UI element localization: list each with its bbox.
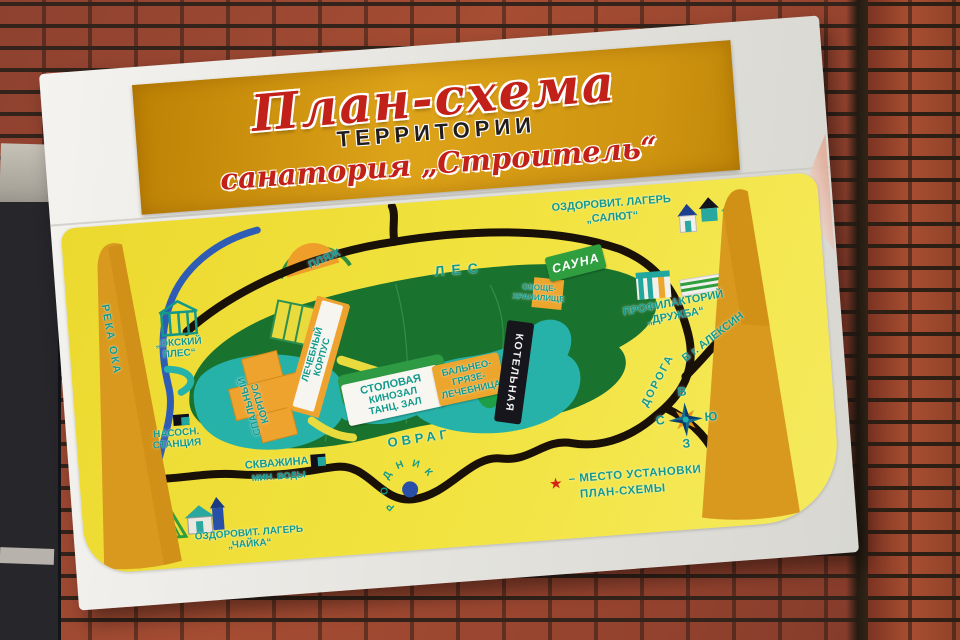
compass-rose: В С Ю З [652, 384, 721, 455]
brick-pillar [868, 0, 960, 640]
compass-north: С [655, 413, 665, 428]
sign-board: План-схема ТЕРРИТОРИИ санатория „Строите… [39, 15, 859, 610]
sign-title: План-схема [250, 59, 618, 138]
compass-south: Ю [704, 409, 718, 424]
compass-west: З [682, 436, 691, 451]
map-panel: ЛЕС ПЛЯЖ РЕКА ОКА „ОКСКИЙ ПЛЕС“ НАСОСН. … [61, 172, 843, 575]
pump-station-icon [173, 414, 190, 426]
dark-window [0, 202, 61, 640]
road-north-stub [391, 206, 396, 242]
window-sill [0, 547, 54, 565]
legend-star-icon: ★ [548, 474, 563, 493]
spring-label: Р О Д Н И К [381, 455, 450, 524]
well-icon [310, 454, 326, 467]
compass-east: В [677, 384, 687, 399]
photo-of-map-sign: План-схема ТЕРРИТОРИИ санатория „Строите… [0, 0, 960, 640]
